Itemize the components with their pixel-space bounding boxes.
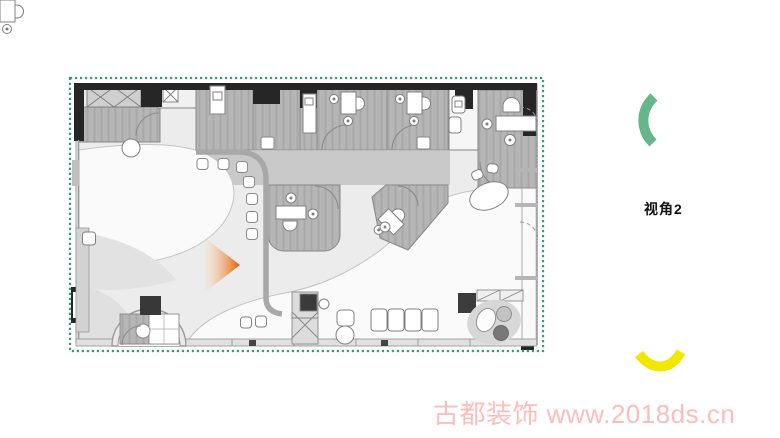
- view-angle-label[interactable]: 视角2: [644, 199, 683, 219]
- coffee-table: [336, 326, 354, 344]
- shelf-column: [292, 292, 318, 344]
- page: 视角2 古都装饰 www.2018ds.cn: [0, 0, 780, 438]
- corridor: [196, 151, 450, 185]
- stool: [83, 232, 96, 245]
- floor-plan-svg: [0, 0, 780, 438]
- watermark-text: 古都装饰 www.2018ds.cn: [433, 394, 780, 431]
- armchair: [337, 310, 354, 326]
- round-table: [122, 139, 140, 157]
- viewpoint-arc-top-icon: [643, 97, 654, 143]
- sofa: [371, 309, 438, 331]
- room-closet: [79, 107, 160, 142]
- viewpoint-arc-bottom-icon: [639, 352, 681, 367]
- wc-fixture: [449, 117, 461, 133]
